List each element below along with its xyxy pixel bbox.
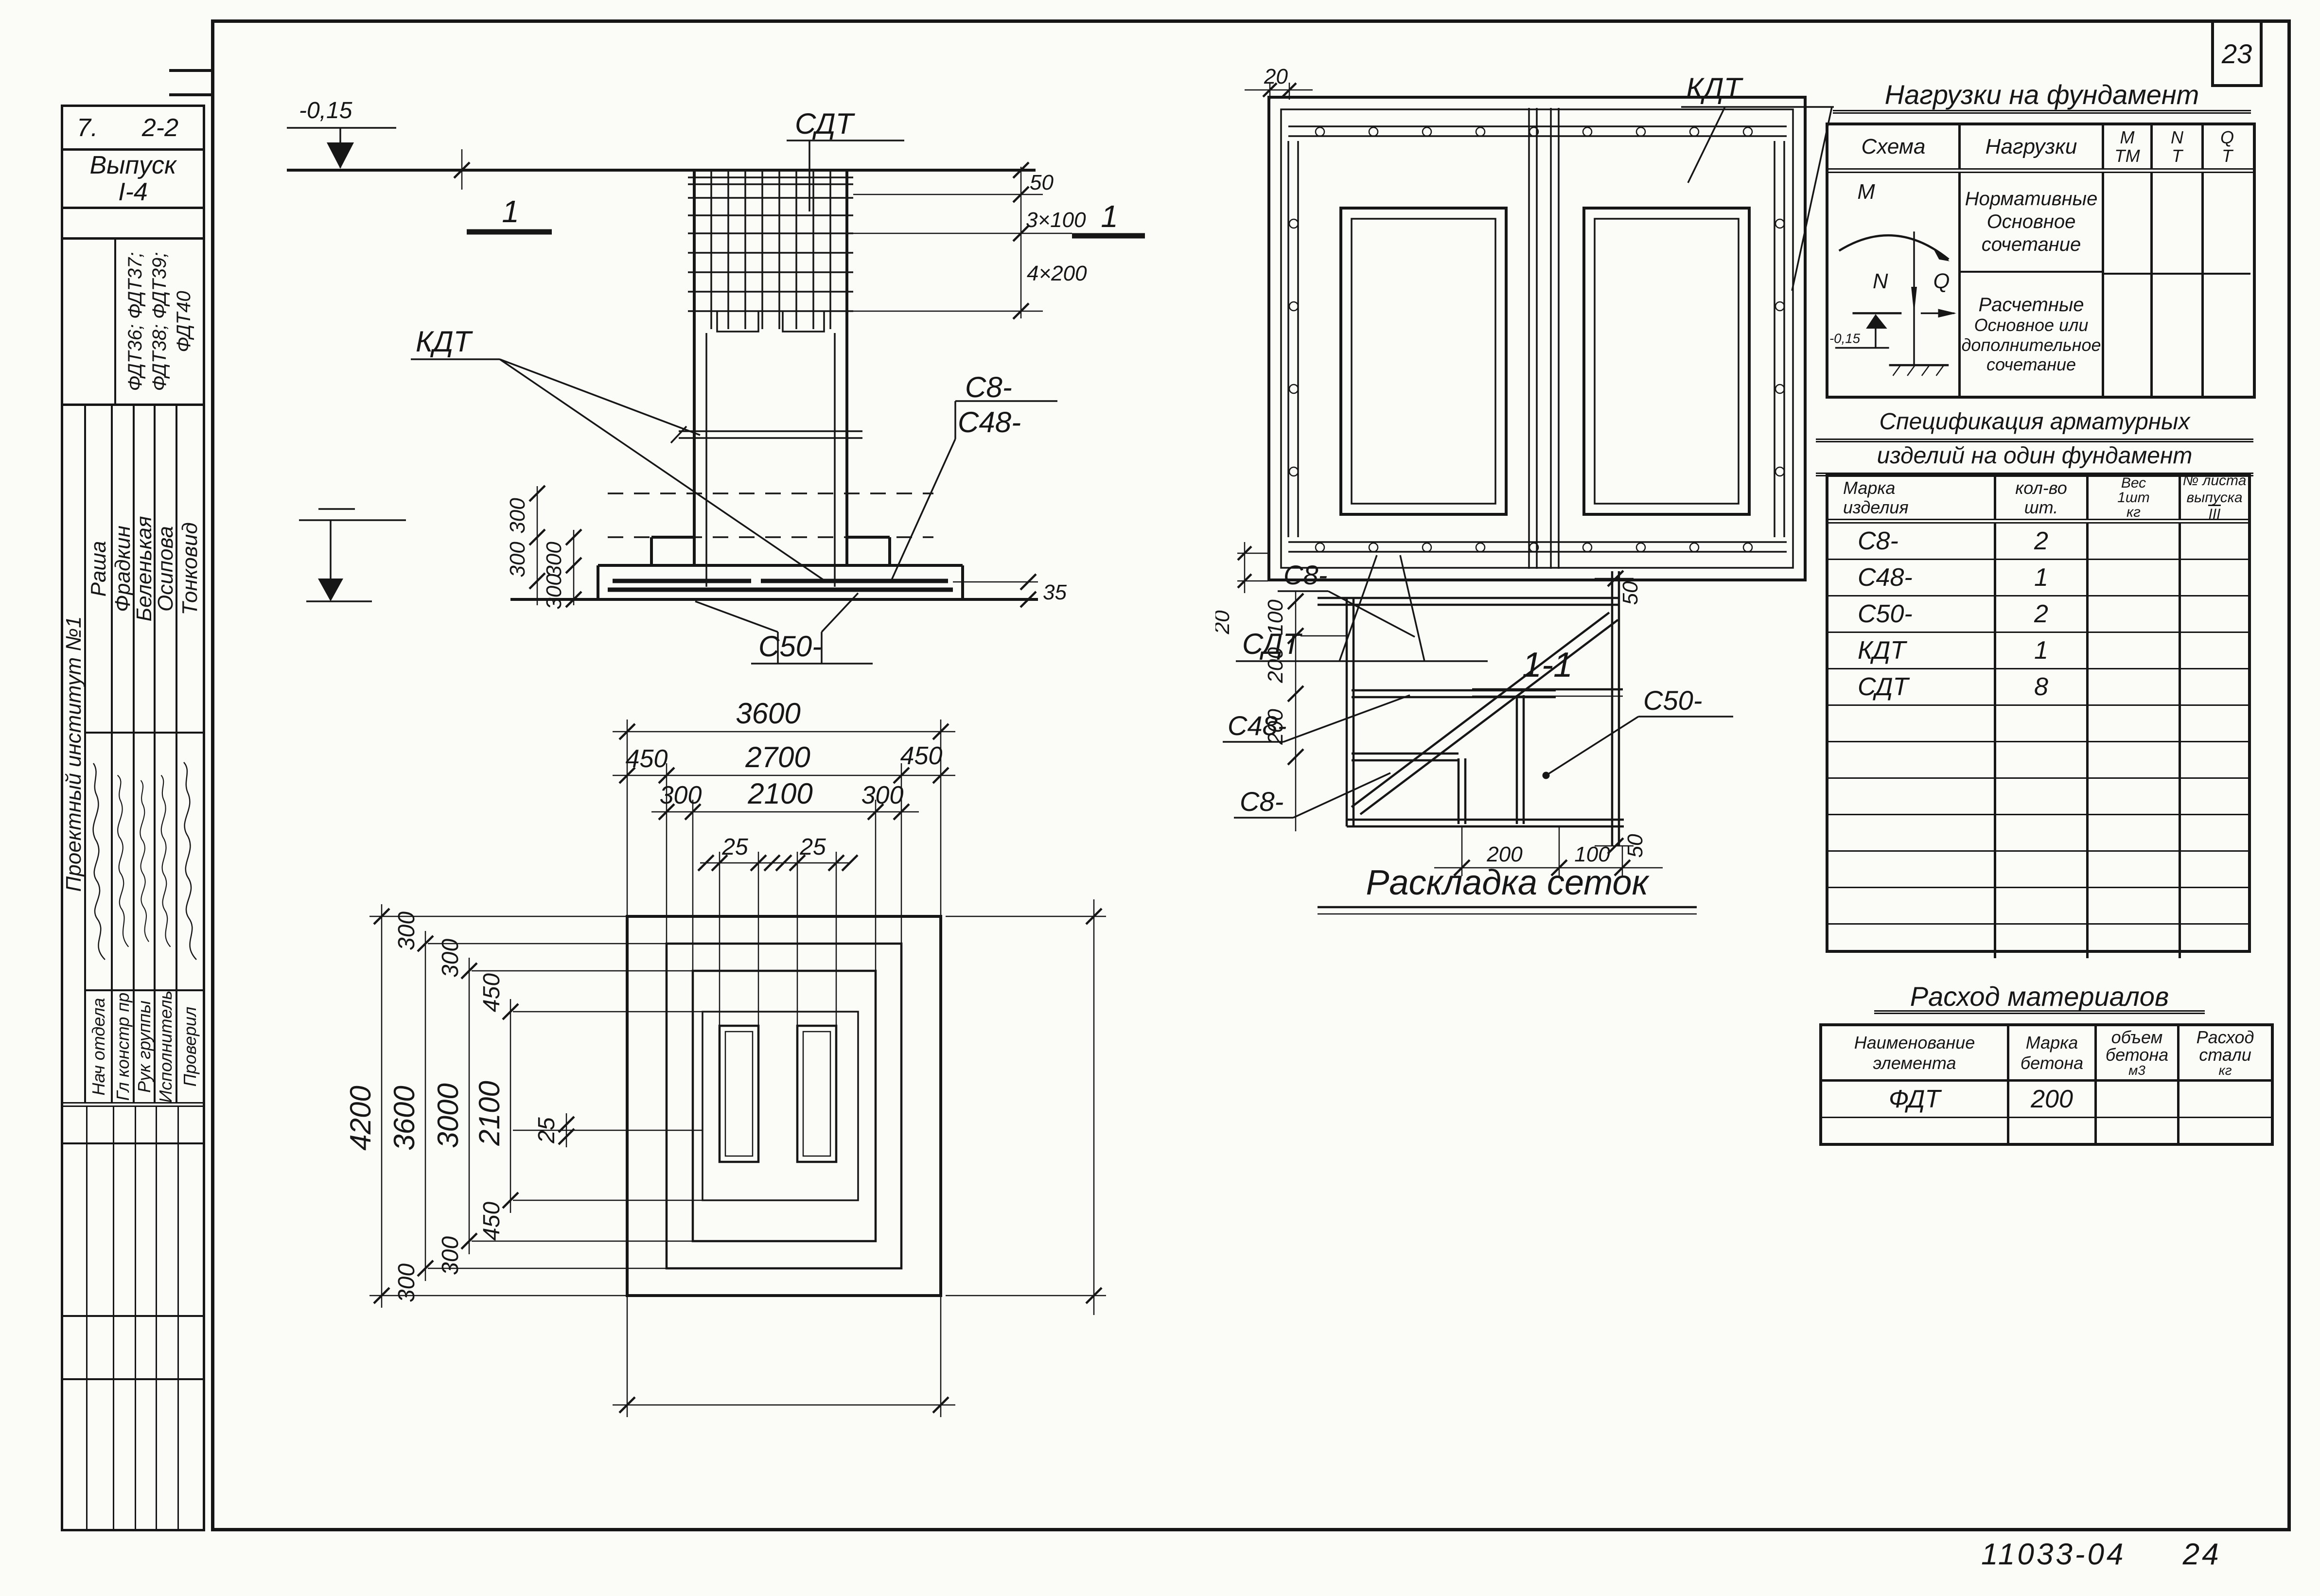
svg-text:450: 450 xyxy=(900,742,943,770)
svg-text:С8-: С8- xyxy=(1283,560,1327,590)
title-block: 7. 2-2 Выпуск I-4 ФДТ36; ФДТ37; ФДТ38; Ф… xyxy=(61,105,205,1531)
frame-stub-line xyxy=(169,93,213,96)
loads-scheme-cell: M N Q -0,15 xyxy=(1828,173,1961,396)
mesh-layout-view: 100 200 200 50 50 200 100 С8- xyxy=(1206,554,1818,953)
svg-text:1: 1 xyxy=(502,194,519,229)
role-name: Беленькая xyxy=(135,406,154,732)
role-column-4: Проверил Тонковид xyxy=(177,406,203,1102)
svg-text:С50-: С50- xyxy=(1643,685,1702,716)
rebar-mesh xyxy=(688,172,853,332)
spec-row xyxy=(1828,888,2248,925)
svg-text:300: 300 xyxy=(394,912,420,950)
role-name: Раша xyxy=(86,406,111,732)
marks-line1: ФДТ36; ФДТ37; xyxy=(123,252,147,391)
svg-text:25: 25 xyxy=(534,1117,560,1144)
spec-row: КДТ 1 xyxy=(1828,633,2248,669)
marks-line3: ФДТ40 xyxy=(172,252,196,391)
spec-row: С8- 2 xyxy=(1828,524,2248,560)
spec-table: Марка изделия кол-во шт. Вес 1шт кг № ли… xyxy=(1826,474,2251,953)
svg-text:3600: 3600 xyxy=(388,1086,421,1150)
role-name: Тонковид xyxy=(177,406,203,732)
svg-text:300: 300 xyxy=(660,781,702,809)
dim-3x100: 3×100 xyxy=(1026,208,1086,232)
plan-dims-bottom-right xyxy=(613,899,1102,1413)
svg-text:Раскладка сеток: Раскладка сеток xyxy=(1366,863,1650,902)
spec-row: С50- 2 xyxy=(1828,596,2248,633)
role-name: Фрадкин xyxy=(113,406,133,732)
materials-col-volume: объем бетона м3 xyxy=(2097,1026,2179,1079)
marks-line2: ФДТ38; ФДТ39; xyxy=(147,252,172,391)
spec-col-qty: кол-во шт. xyxy=(1996,477,2089,519)
loads-rows: Нормативные Основное сочетание Расчетные… xyxy=(1961,173,2104,396)
loads-table: Схема Нагрузки М ТМ N Т Q Т M xyxy=(1826,123,2256,399)
loads-col-n: N Т xyxy=(2153,125,2204,168)
loads-col-q: Q Т xyxy=(2204,125,2250,168)
svg-text:300: 300 xyxy=(861,781,904,809)
role-column-0: Нач отдела Раша xyxy=(86,406,113,1102)
signature-scribble xyxy=(156,759,176,964)
right-rebar-band xyxy=(1775,141,1784,537)
label-c8-c48: С8- С48- xyxy=(891,371,1057,582)
materials-row xyxy=(1822,1118,2271,1144)
loads-col-m: М ТМ xyxy=(2104,125,2153,168)
title-block-row1-left: 7. xyxy=(77,113,98,142)
dim-35: 35 xyxy=(953,574,1067,607)
issue-line1: Выпуск xyxy=(89,152,176,179)
doc-number: 11033-04 xyxy=(1981,1538,2126,1571)
loads-values-n xyxy=(2153,173,2204,396)
svg-text:200: 200 xyxy=(1486,842,1523,866)
spec-row: СДТ 8 xyxy=(1828,669,2248,706)
svg-text:300: 300 xyxy=(506,498,529,534)
svg-text:СДТ: СДТ xyxy=(795,107,856,140)
sheet-number: 24 xyxy=(2183,1538,2221,1571)
marks-cell: ФДТ36; ФДТ37; ФДТ38; ФДТ39; ФДТ40 xyxy=(116,240,203,403)
dims-right: 50 50 xyxy=(1595,571,1647,858)
plan-outer-rect xyxy=(627,916,941,1296)
role-title: Проверил xyxy=(177,989,203,1102)
svg-text:35: 35 xyxy=(1043,580,1067,604)
svg-text:4200: 4200 xyxy=(344,1086,377,1150)
svg-text:1: 1 xyxy=(1101,199,1118,234)
spec-row xyxy=(1828,706,2248,742)
signature-scribble xyxy=(113,759,133,964)
elevation-view: -0,15 1 1 xyxy=(272,90,1147,702)
svg-text:С8-: С8- xyxy=(965,371,1012,403)
shear-label: Q xyxy=(1933,270,1950,293)
frame-stub-line xyxy=(169,69,213,72)
materials-col-grade: Марка бетона xyxy=(2009,1026,2097,1079)
svg-text:3000: 3000 xyxy=(432,1083,464,1148)
loads-row-design: Расчетные Основное или дополнительное со… xyxy=(1961,273,2102,396)
svg-text:450: 450 xyxy=(479,1202,505,1241)
plan-dims-top: 3600 450 2700 450 300 2100 300 25 25 xyxy=(613,697,955,871)
svg-text:300: 300 xyxy=(506,542,529,578)
org-column: Проектный институт №1 xyxy=(63,406,86,1102)
svg-text:С8-: С8- xyxy=(1240,786,1283,817)
axial-label: N xyxy=(1873,270,1888,293)
opening-right xyxy=(1584,208,1749,514)
signature xyxy=(177,732,203,989)
materials-table: Наименование элемента Марка бетона объем… xyxy=(1819,1023,2274,1146)
svg-text:200: 200 xyxy=(1264,647,1287,684)
label-kdt: КДТ xyxy=(1681,72,1834,291)
svg-text:300: 300 xyxy=(542,542,566,578)
materials-col-steel: Расход стали кг xyxy=(2179,1026,2271,1079)
label-c48: С48- xyxy=(1223,695,1410,742)
plan-view: 3600 450 2700 450 300 2100 300 25 25 420… xyxy=(340,690,1167,1449)
spec-row xyxy=(1828,925,2248,958)
role-column-2: Рук группы Беленькая xyxy=(135,406,156,1102)
materials-title: Расход материалов xyxy=(1874,982,2205,1014)
signature-scribble xyxy=(135,759,154,964)
loads-col-loads: Нагрузки xyxy=(1961,125,2104,168)
spec-title: Спецификация арматурных изделий на один … xyxy=(1816,408,2253,476)
spec-col-weight: Вес 1шт кг xyxy=(2089,477,2181,519)
svg-text:2100: 2100 xyxy=(747,777,812,810)
spec-row: С48- 1 xyxy=(1828,560,2248,596)
mesh-bars xyxy=(1318,571,1624,846)
svg-text:100: 100 xyxy=(1264,599,1287,635)
spec-row xyxy=(1828,815,2248,852)
dim-4x200: 4×200 xyxy=(1027,262,1087,285)
svg-text:КДТ: КДТ xyxy=(416,325,474,358)
label-kdt: КДТ xyxy=(411,325,826,582)
role-title: Нач отдела xyxy=(86,989,111,1102)
label-c50: С50- xyxy=(1543,685,1733,779)
issue-line2: I-4 xyxy=(118,179,148,206)
svg-text:25: 25 xyxy=(721,834,748,860)
opening-left xyxy=(1341,208,1506,514)
title-block-row1: 7. 2-2 xyxy=(63,107,203,148)
loads-values-q xyxy=(2204,173,2250,396)
svg-text:3600: 3600 xyxy=(736,697,800,730)
signature xyxy=(86,732,111,989)
svg-text:300: 300 xyxy=(394,1263,420,1302)
signature-scribble xyxy=(88,759,110,964)
loads-scheme-diagram: M N Q -0,15 xyxy=(1828,173,1958,396)
svg-text:С50-: С50- xyxy=(758,630,822,663)
loads-col-schema: Схема xyxy=(1828,125,1961,168)
role-title: Рук группы xyxy=(135,989,154,1102)
moment-label: M xyxy=(1857,180,1875,204)
org-name: Проектный институт №1 xyxy=(62,616,86,892)
title-block-row1-right: 2-2 xyxy=(142,113,178,142)
dim-chain-left: 300 300 300 300 xyxy=(506,486,581,610)
materials-row: ФДТ 200 xyxy=(1822,1082,2271,1118)
spec-rows: С8- 2 С48- 1 С50- 2 КДТ 1 xyxy=(1828,524,2248,958)
loads-row-normative: Нормативные Основное сочетание xyxy=(1961,173,2102,273)
plan-slot-right xyxy=(797,1026,836,1162)
diagonal-bar xyxy=(1352,613,1609,807)
signature xyxy=(113,732,133,989)
svg-text:50: 50 xyxy=(1623,834,1647,858)
signature xyxy=(156,732,176,989)
drawing-sheet: 23 7. 2-2 Выпуск I-4 ФДТ36; ФДТ37; ФДТ38… xyxy=(0,0,2320,1596)
role-name: Осипова xyxy=(156,406,176,732)
svg-text:100: 100 xyxy=(1574,842,1610,866)
svg-text:С48-: С48- xyxy=(958,406,1021,438)
scheme-level: -0,15 xyxy=(1829,331,1861,346)
signature-scribble xyxy=(178,759,202,964)
dim-20-top: 20 xyxy=(1245,65,1313,100)
svg-text:50: 50 xyxy=(1618,581,1642,605)
left-rebar-band xyxy=(1288,141,1298,537)
title-block-issue: Выпуск I-4 xyxy=(63,151,203,207)
cut-mark-left: 1 xyxy=(467,194,552,232)
level-value: -0,15 xyxy=(299,98,352,123)
loads-title: Нагрузки на фундамент xyxy=(1833,79,2251,114)
svg-text:450: 450 xyxy=(626,745,668,773)
svg-text:300: 300 xyxy=(438,939,463,978)
page-number: 23 xyxy=(2222,38,2252,70)
svg-text:2100: 2100 xyxy=(473,1081,506,1146)
plan-extension-lines xyxy=(369,719,1106,1417)
document-number: 11033-04 24 xyxy=(1981,1537,2221,1572)
plan-dims-left: 4200 3600 3000 2100 300 300 450 450 300 … xyxy=(344,904,574,1308)
role-column-1: Гл констр пр Фрадкин xyxy=(113,406,135,1102)
loads-values-m xyxy=(2104,173,2153,396)
svg-text:450: 450 xyxy=(479,973,505,1012)
buried-outline-dashed xyxy=(608,493,933,537)
svg-text:300: 300 xyxy=(542,574,566,610)
spec-row xyxy=(1828,742,2248,779)
center-bars xyxy=(1529,108,1559,569)
role-title: Исполнитель xyxy=(156,989,176,1102)
svg-text:С48-: С48- xyxy=(1228,710,1286,741)
materials-col-name: Наименование элемента xyxy=(1822,1026,2009,1079)
elevation-level-mark-top: -0,15 xyxy=(287,98,396,169)
spec-row xyxy=(1828,779,2248,815)
svg-text:300: 300 xyxy=(438,1236,463,1275)
label-c50: С50- xyxy=(695,593,873,664)
dim-50: 50 xyxy=(1030,171,1054,194)
signature xyxy=(135,732,154,989)
role-title: Гл констр пр xyxy=(113,989,133,1102)
svg-text:25: 25 xyxy=(799,834,826,860)
page-number-box: 23 xyxy=(2211,23,2263,87)
level-mark-bottom xyxy=(299,509,406,601)
spec-col-mark: Марка изделия xyxy=(1828,477,1996,519)
dim-ladder-right: 50 3×100 4×200 xyxy=(853,162,1087,319)
svg-text:2700: 2700 xyxy=(745,741,810,773)
svg-text:КДТ: КДТ xyxy=(1686,72,1744,105)
plan-slot-left xyxy=(720,1026,758,1162)
spec-row xyxy=(1828,852,2248,888)
role-column-3: Исполнитель Осипова xyxy=(156,406,177,1102)
view-title: Раскладка сеток xyxy=(1318,863,1697,914)
spec-col-sheet: № листа выпуска III xyxy=(2181,477,2248,519)
